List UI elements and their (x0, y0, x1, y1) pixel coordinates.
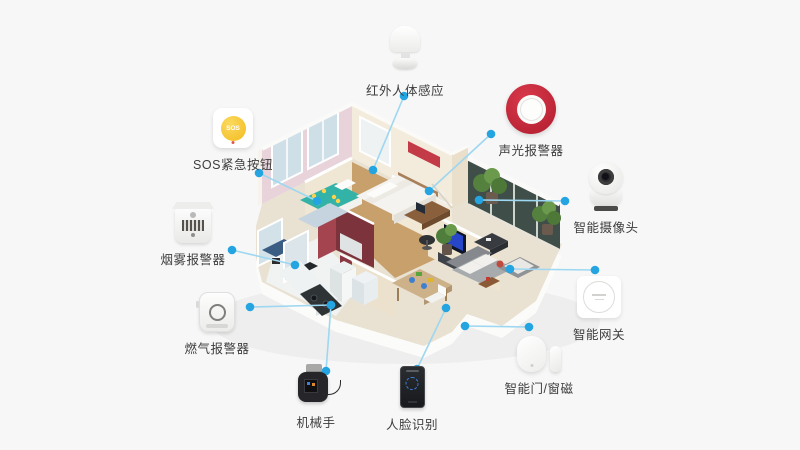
device-sos-button: SOS SOS紧急按钮 (183, 108, 283, 173)
door-window-sensor-label: 智能门/窗磁 (505, 378, 574, 397)
face-recognition-icon (400, 366, 425, 408)
device-gas-alarm: 燃气报警器 (167, 292, 267, 357)
gas-alarm-label: 燃气报警器 (184, 338, 249, 357)
siren-label: 声光报警器 (498, 140, 563, 159)
smoke-alarm-label: 烟雾报警器 (160, 249, 225, 268)
camera-icon (589, 162, 623, 211)
sos-button-icon: SOS (213, 108, 253, 148)
device-camera: 智能摄像头 (556, 162, 656, 236)
gateway-icon (577, 276, 621, 318)
sos-button-label: SOS紧急按钮 (193, 154, 273, 173)
motion-sensor-label: 红外人体感应 (366, 80, 444, 99)
smoke-alarm-icon (172, 202, 214, 243)
smart-home-diagram: 红外人体感应 SOS SOS紧急按钮 烟雾报警器 燃气报警器 机械手 人脸识别 (0, 0, 800, 450)
motion-sensor-icon (390, 26, 420, 74)
face-recognition-label: 人脸识别 (386, 414, 438, 433)
device-motion-sensor: 红外人体感应 (355, 26, 455, 99)
device-siren: 声光报警器 (481, 84, 581, 159)
gas-alarm-icon (199, 292, 235, 332)
device-door-window-sensor: 智能门/窗磁 (489, 334, 589, 397)
gateway-label: 智能网关 (573, 324, 625, 343)
siren-icon (506, 84, 556, 134)
robot-arm-icon (288, 366, 344, 406)
device-robot-arm: 机械手 (266, 366, 366, 431)
device-face-recognition: 人脸识别 (362, 366, 462, 433)
robot-arm-label: 机械手 (296, 412, 335, 431)
sos-button-face: SOS (221, 116, 246, 141)
hall-step-wall (452, 146, 468, 208)
device-smoke-alarm: 烟雾报警器 (143, 202, 243, 268)
device-gateway: 智能网关 (549, 276, 649, 343)
camera-label: 智能摄像头 (573, 217, 638, 236)
